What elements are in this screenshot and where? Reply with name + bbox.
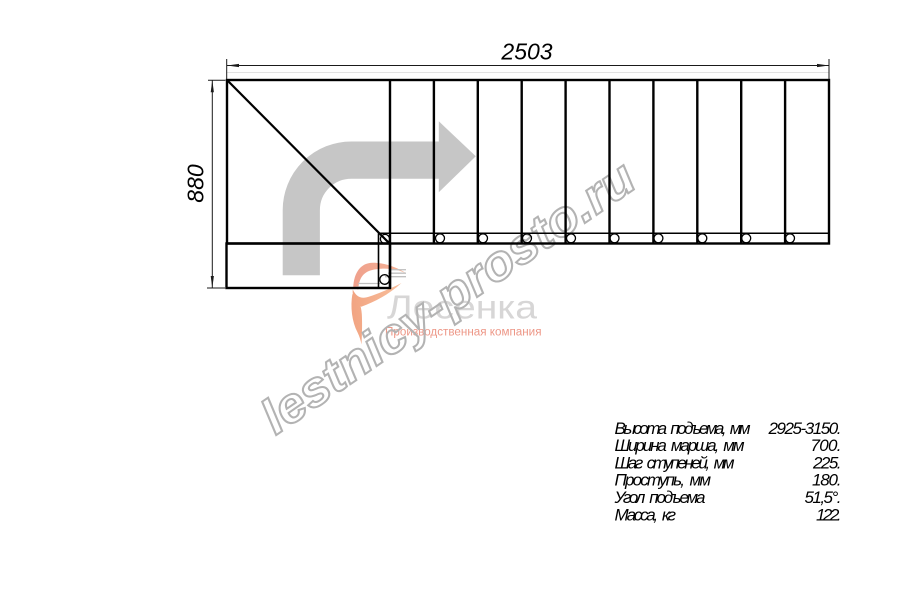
svg-text:2925-3150.: 2925-3150. [768,419,842,438]
svg-text:2503: 2503 [500,39,552,65]
svg-text:Высота подъема, мм: Высота подъема, мм [615,419,751,438]
svg-text:880: 880 [183,164,209,203]
svg-text:225.: 225. [812,453,842,472]
svg-text:122.: 122. [816,505,842,524]
svg-text:Проступь, мм: Проступь, мм [615,471,712,490]
svg-text:Ширина марша, мм: Ширина марша, мм [615,436,745,455]
svg-text:180.: 180. [812,471,842,490]
svg-text:Угол подъема: Угол подъема [614,488,706,507]
svg-text:Масса, кг: Масса, кг [615,505,677,524]
svg-text:Шаг ступеней, мм: Шаг ступеней, мм [615,453,735,472]
svg-text:51,5°.: 51,5°. [805,488,842,507]
svg-text:700.: 700. [811,436,842,455]
